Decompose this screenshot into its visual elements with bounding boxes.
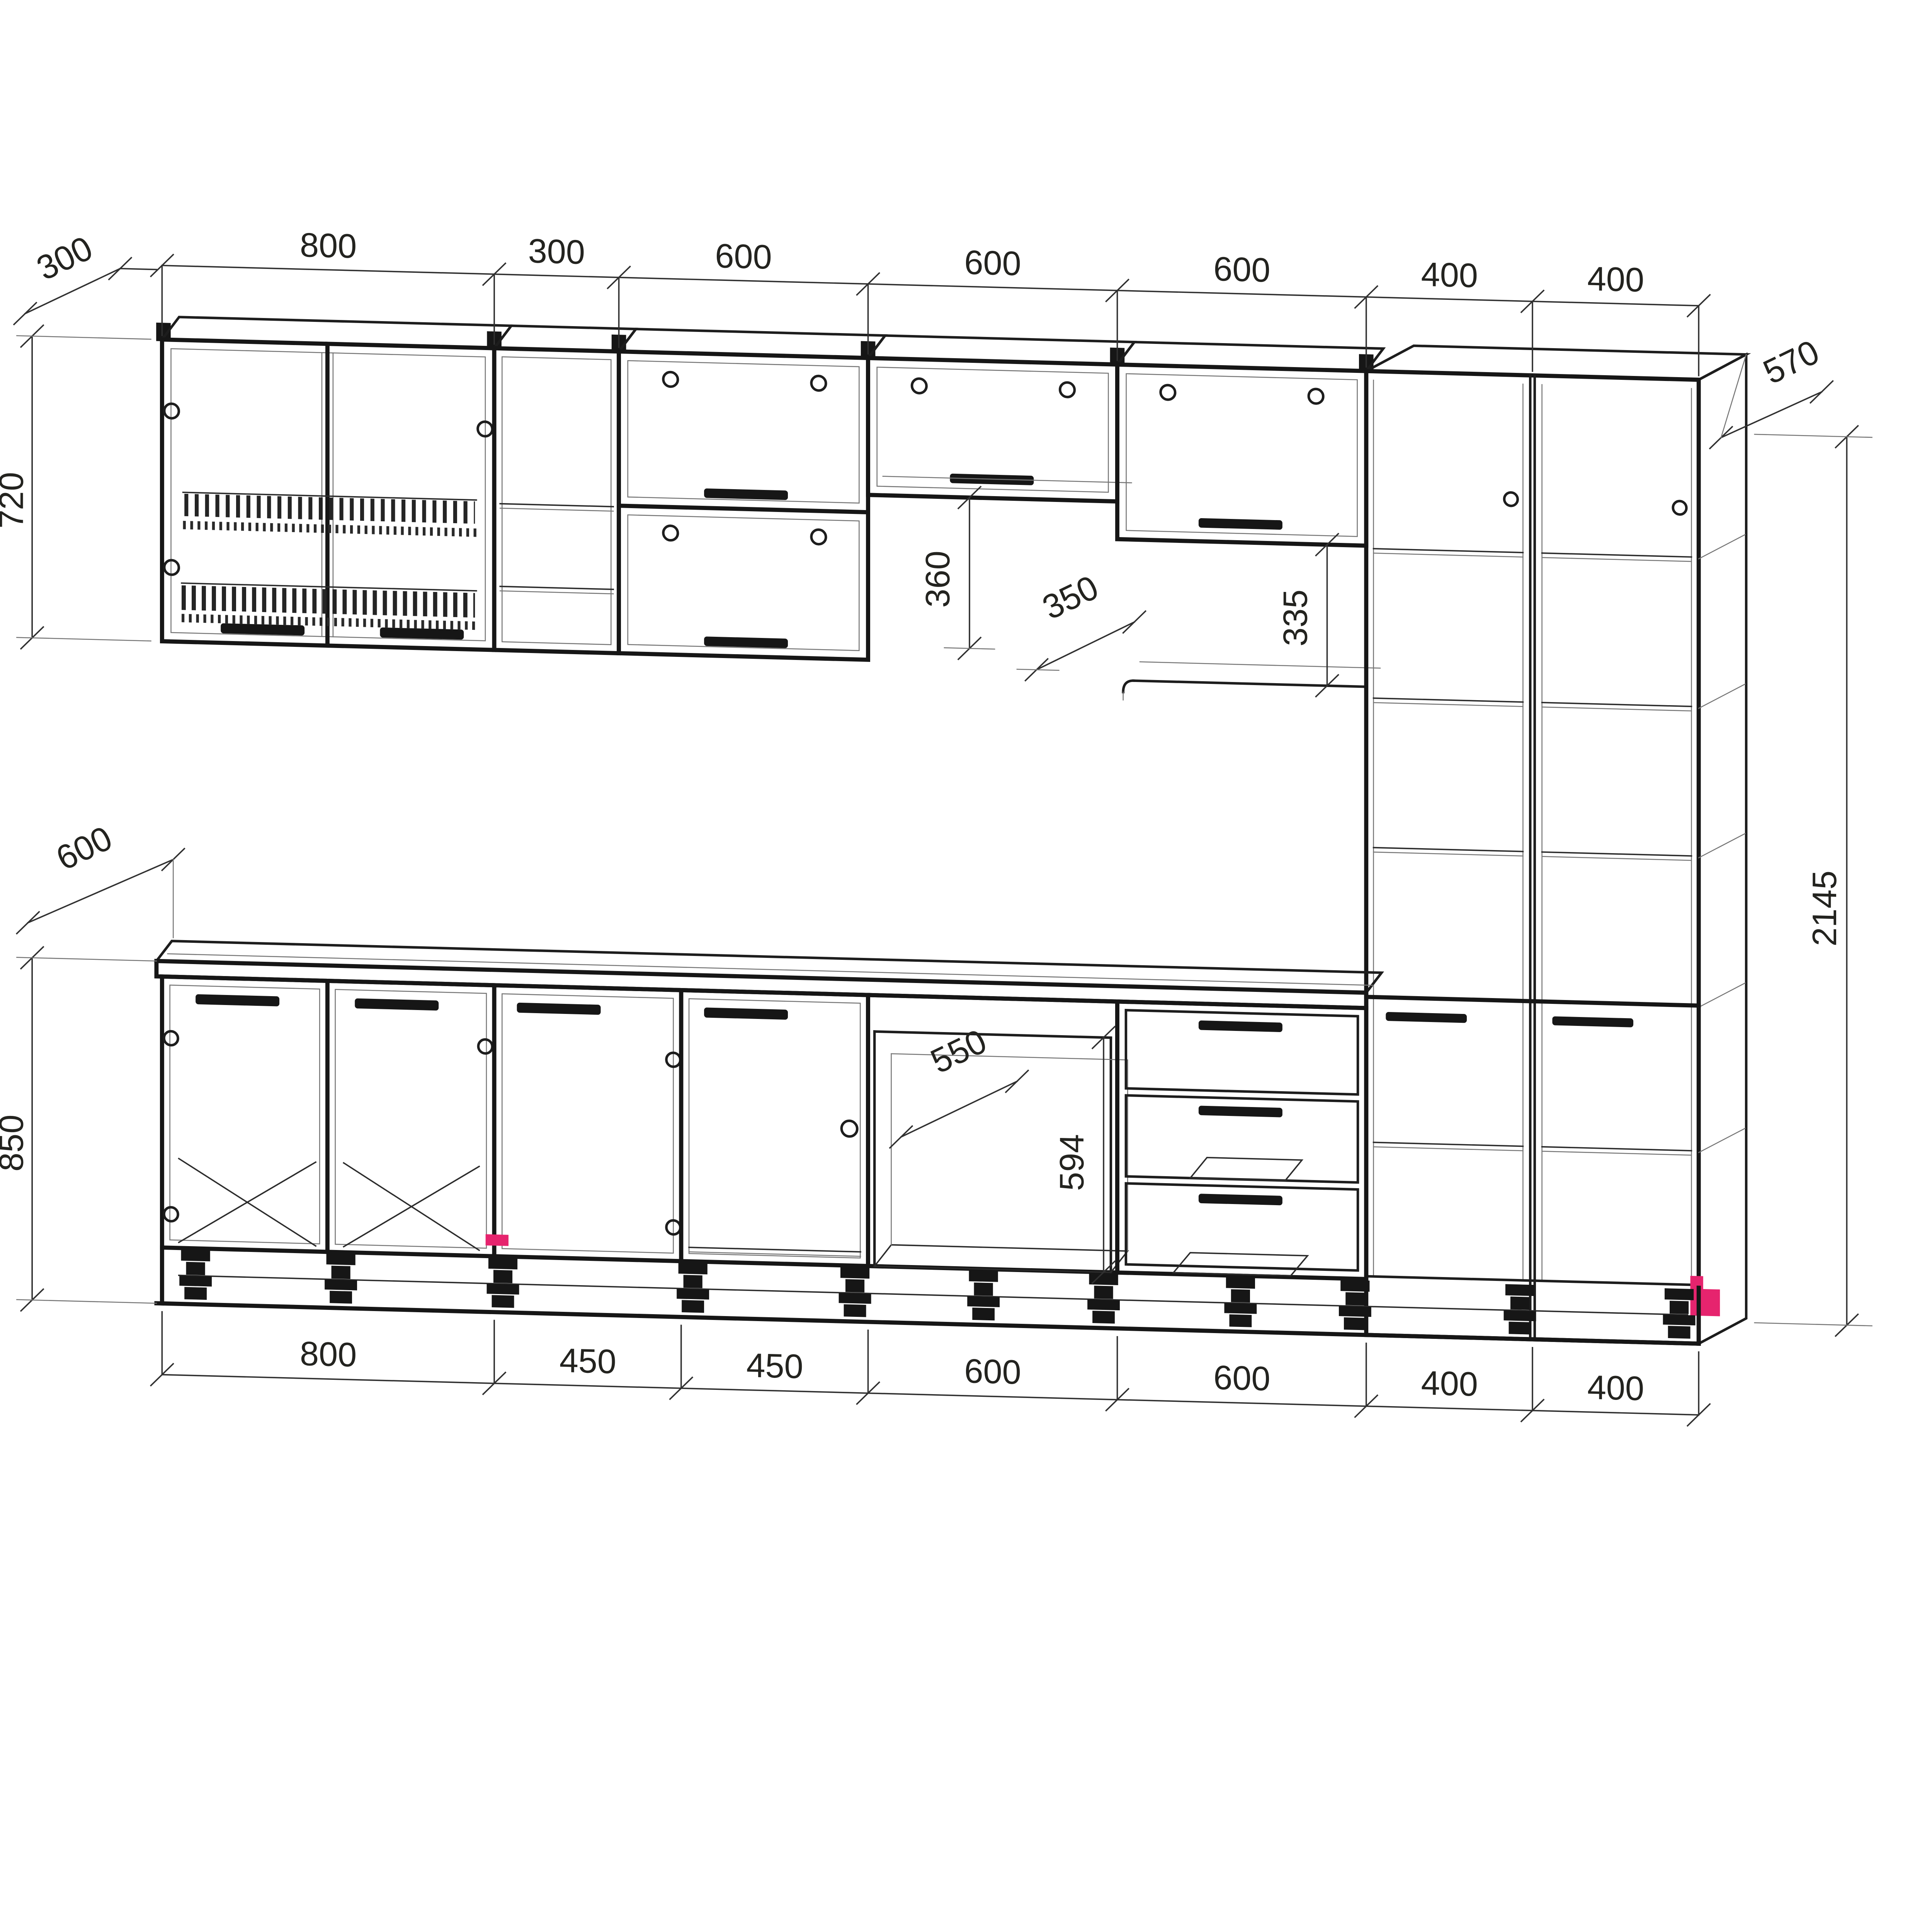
door-handle xyxy=(1552,1016,1633,1027)
tall-shelves xyxy=(1374,525,1745,1153)
dimension-left-base-depth: 600 xyxy=(17,816,184,938)
wall-cabinet-600-open-shelf xyxy=(1117,342,1383,707)
door-handle xyxy=(704,1007,788,1020)
base-cabinet-450-1 xyxy=(494,985,681,1261)
base-cabinet-800 xyxy=(162,976,494,1256)
dim-bottom-600-2: 600 xyxy=(1213,1358,1270,1398)
wall-cabinet-600-bridge xyxy=(868,335,1134,502)
highlighted-plinth-bracket xyxy=(1690,1276,1720,1316)
hinge-icon xyxy=(1504,492,1518,506)
hinge-icon xyxy=(164,560,179,575)
dim-bottom-600-1: 600 xyxy=(964,1352,1021,1391)
dimension-left-wall-depth: 300 xyxy=(14,227,156,328)
wall-cabinet-300 xyxy=(494,325,636,654)
hinge-icon xyxy=(164,403,179,418)
dim-top-800: 800 xyxy=(300,226,357,265)
shelf xyxy=(689,1247,861,1252)
shelf xyxy=(500,504,613,507)
drawing-root: 800 300 600 600 600 400 400 800 450 450 xyxy=(0,218,1872,1430)
dim-top-600-2: 600 xyxy=(964,243,1021,283)
hinge-icon xyxy=(811,376,826,391)
tall-right-side-face xyxy=(1699,353,1746,1345)
base-cabinet-row xyxy=(156,976,1699,1344)
plinth xyxy=(156,1247,1699,1344)
tall-cabinet-block xyxy=(1366,345,1746,1345)
dimension-open-shelf-gap: 335 xyxy=(1276,532,1338,697)
hinge-icon xyxy=(663,372,678,387)
dim-bottom-400-2: 400 xyxy=(1587,1368,1644,1408)
wall-cabinet-row xyxy=(156,316,1383,707)
drawer-handle xyxy=(1199,1105,1282,1117)
kitchen-cabinet-drawing: 800 300 600 600 600 400 400 800 450 450 xyxy=(0,0,1932,1581)
dimension-line-bottom: 800 450 450 600 600 400 400 xyxy=(151,1311,1710,1426)
dimension-bridge-shelf-depth: 350 xyxy=(1017,566,1146,684)
hinge-icon xyxy=(1161,385,1175,400)
dimension-left-wall-height: 720 xyxy=(0,324,151,652)
drawer-handle xyxy=(1199,1020,1282,1032)
hinge-icon xyxy=(478,1039,492,1054)
dimension-niche-depth: 550 xyxy=(890,1019,1028,1151)
dim-bottom-450-1: 450 xyxy=(560,1341,616,1381)
dim-top-600-1: 600 xyxy=(715,236,772,276)
dim-bridge-gap-360: 360 xyxy=(918,550,957,608)
dimension-right-tall-height: 2145 xyxy=(1755,423,1872,1337)
dim-bottom-800: 800 xyxy=(300,1334,357,1374)
drawer-handle xyxy=(1199,1194,1282,1205)
dimension-line-top: 800 300 600 600 600 400 400 xyxy=(151,222,1710,376)
dim-base-height-850: 850 xyxy=(0,1114,30,1172)
door-handle xyxy=(1386,1012,1467,1023)
dim-top-400-2: 400 xyxy=(1587,259,1644,299)
door-handle xyxy=(355,998,439,1011)
drawing-canvas: 800 300 600 600 600 400 400 800 450 450 xyxy=(0,0,1932,1581)
dim-bottom-450-2: 450 xyxy=(746,1346,803,1386)
hinge-icon xyxy=(1673,501,1687,515)
dimension-bridge-gap: 360 xyxy=(918,485,995,660)
dim-base-depth-600: 600 xyxy=(50,818,118,878)
flip-door-handle xyxy=(704,488,788,500)
hinge-icon xyxy=(1060,382,1075,397)
hinge-icon xyxy=(1309,389,1323,404)
base-cabinet-600-drawers xyxy=(1117,1002,1366,1279)
dim-top-400-1: 400 xyxy=(1421,255,1478,295)
dim-wall-depth-300: 300 xyxy=(31,228,99,287)
dim-bridge-shelf-350: 350 xyxy=(1036,568,1104,627)
shelf xyxy=(500,587,613,590)
plate-rack-upper-teeth xyxy=(184,505,475,513)
hinge-icon xyxy=(663,526,678,541)
hinge-icon xyxy=(912,378,927,393)
dim-tall-height-2145: 2145 xyxy=(1805,870,1844,947)
dim-wall-height-720: 720 xyxy=(0,471,30,529)
highlighted-connector xyxy=(486,1234,509,1246)
dim-tall-depth-570: 570 xyxy=(1757,332,1825,391)
hinge-icon xyxy=(164,1031,178,1045)
hinge-icon xyxy=(164,1207,178,1221)
dim-niche-depth-550: 550 xyxy=(925,1022,993,1081)
dim-top-600-3: 600 xyxy=(1213,250,1270,289)
base-cabinet-450-2 xyxy=(681,990,868,1266)
flip-door-handle xyxy=(1199,518,1282,530)
hinge-icon xyxy=(842,1121,857,1137)
wall-cabinet-600-flip-doors xyxy=(619,328,885,660)
door-handle xyxy=(517,1003,601,1015)
door-handle xyxy=(196,994,279,1007)
dim-bottom-400-1: 400 xyxy=(1421,1364,1478,1403)
dimension-niche-height: 594 xyxy=(1053,1025,1115,1284)
dim-top-300: 300 xyxy=(528,231,585,271)
dim-niche-height-594: 594 xyxy=(1053,1133,1091,1191)
hinge-icon xyxy=(811,529,826,544)
countertop xyxy=(156,940,1382,1009)
dim-open-shelf-335: 335 xyxy=(1276,589,1315,647)
dimension-left-base-height: 850 xyxy=(0,946,156,1315)
dimension-right-tall-depth: 570 xyxy=(1710,330,1833,452)
wall-cabinet-800-plate-rack xyxy=(162,316,511,650)
